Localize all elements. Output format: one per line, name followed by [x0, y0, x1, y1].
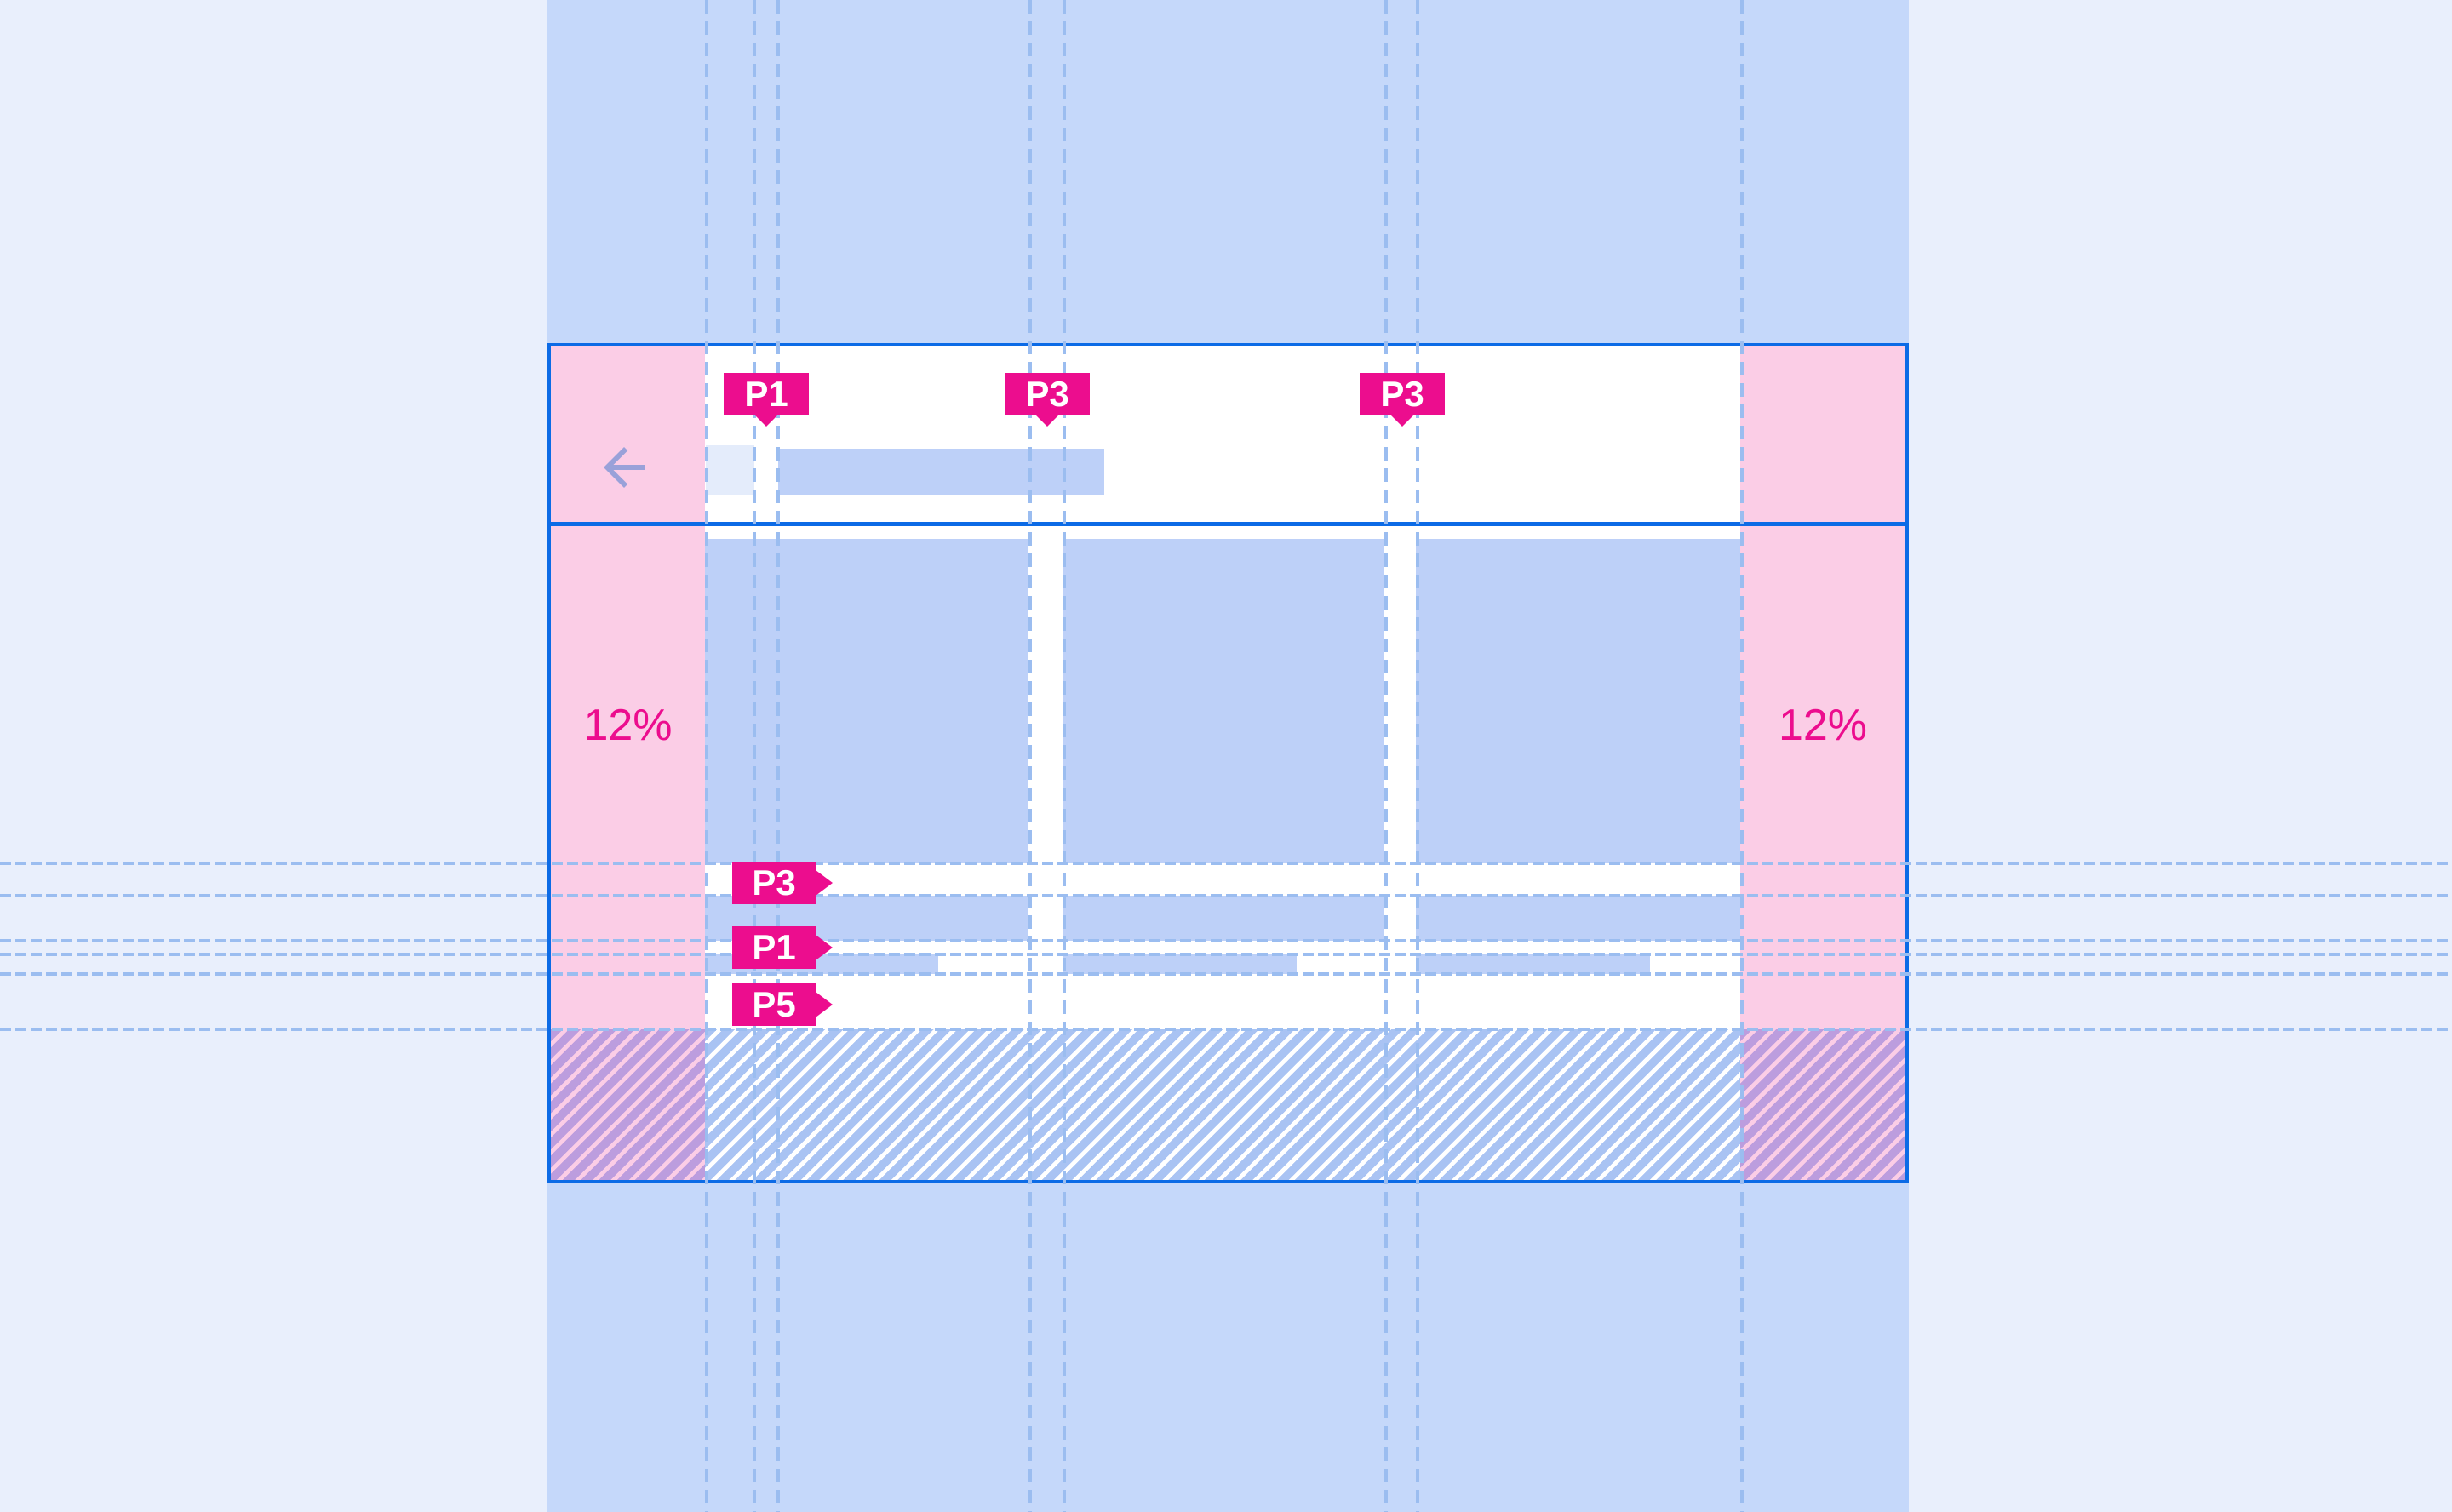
vertical-guide-icon-end	[753, 0, 756, 1512]
gutter-tag-p3-first: P3	[1005, 373, 1090, 415]
horizontal-guide-row1-bottom	[0, 939, 2452, 942]
screen-mockup: 12% 12% P1 P3 P3 P3 P1 P5	[547, 343, 1909, 1183]
bottom-hatch-left-margin	[551, 1029, 705, 1180]
padding-tag-p1-row: P1	[732, 926, 816, 969]
horizontal-guide-row2-top	[0, 953, 2452, 956]
content-card	[1063, 539, 1384, 863]
list-subrow-placeholder	[1063, 954, 1297, 974]
vertical-guide-gutter1-right	[1063, 0, 1066, 1512]
nav-icon-placeholder	[706, 445, 754, 495]
right-margin-label: 12%	[1740, 696, 1905, 755]
list-row-placeholder	[1416, 896, 1740, 941]
gutter-tag-p3-second: P3	[1360, 373, 1445, 415]
vertical-guide-gutter1-left	[1028, 0, 1032, 1512]
bottom-hatch-content	[705, 1029, 1740, 1180]
vertical-guide-content-left	[705, 0, 708, 1512]
vertical-guide-title-start	[776, 0, 780, 1512]
padding-tag-p3-row: P3	[732, 862, 816, 904]
vertical-guide-content-right	[1740, 0, 1744, 1512]
title-placeholder	[778, 449, 1104, 495]
horizontal-guide-row2-bottom	[0, 972, 2452, 976]
back-arrow-icon	[593, 437, 655, 498]
horizontal-guide-card-bottom	[0, 862, 2452, 865]
horizontal-guide-row1-top	[0, 894, 2452, 897]
right-margin-overlay: 12%	[1740, 346, 1905, 1029]
bottom-hatch-right-margin	[1740, 1029, 1905, 1180]
padding-tag-p1-top: P1	[724, 373, 809, 415]
left-margin-label: 12%	[551, 696, 705, 755]
vertical-guide-gutter2-left	[1384, 0, 1388, 1512]
vertical-guide-gutter2-right	[1416, 0, 1419, 1512]
content-card	[1416, 539, 1740, 863]
horizontal-guide-hatch-top	[0, 1028, 2452, 1031]
list-row-placeholder	[1063, 896, 1384, 941]
padding-tag-p5-row: P5	[732, 983, 816, 1026]
list-subrow-placeholder	[1416, 954, 1650, 974]
